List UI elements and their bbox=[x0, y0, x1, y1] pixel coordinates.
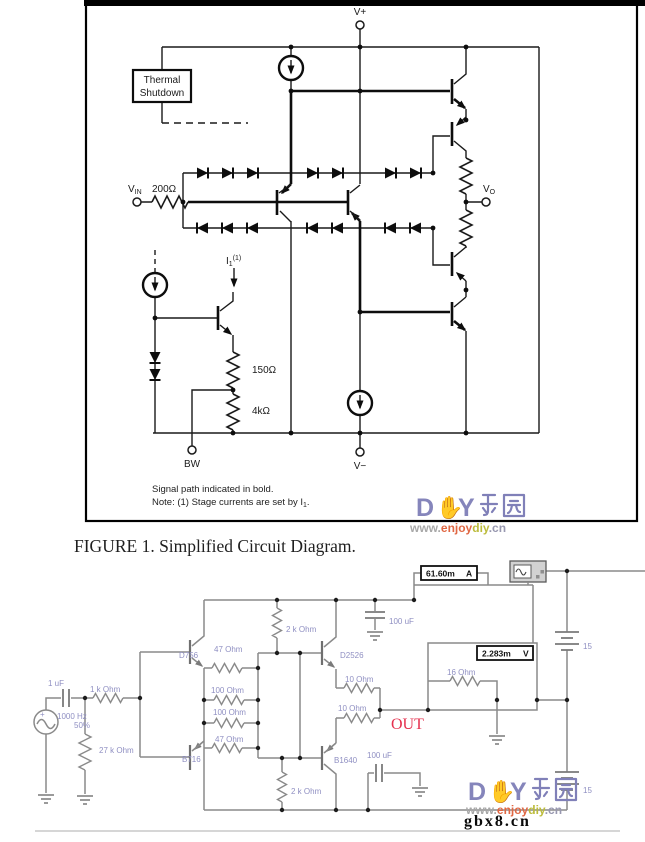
resistor-4kohm bbox=[227, 394, 239, 430]
figure1-caption: FIGURE 1. Simplified Circuit Diagram. bbox=[74, 536, 356, 556]
thermal-shutdown-line1: Thermal bbox=[144, 75, 181, 86]
figure1-bold-signal-path bbox=[188, 91, 450, 312]
battery-top-label: 15 bbox=[583, 642, 592, 651]
v-plus-terminal bbox=[356, 21, 364, 29]
r1k-label: 1 k Ohm bbox=[90, 685, 121, 694]
watermark-d: D bbox=[416, 494, 434, 522]
current-sources bbox=[143, 56, 372, 415]
figure1-resistors bbox=[152, 158, 472, 430]
bw-terminal bbox=[188, 446, 196, 454]
cap-supply-label: 100 uF bbox=[389, 617, 414, 626]
watermark-bottom: D ✋ Y www.enjoydiy.cn gbx8.cn bbox=[464, 778, 576, 830]
v-plus-label: V+ bbox=[354, 7, 367, 18]
schematic-transistor-base-bars bbox=[190, 640, 322, 770]
source-duty-label: 50% bbox=[74, 721, 90, 730]
r10-bottom-label: 10 Ohm bbox=[338, 704, 367, 713]
vin-terminal bbox=[133, 198, 141, 206]
q-d2526-label: D2526 bbox=[340, 651, 364, 660]
schematic-junction-dots bbox=[83, 569, 569, 812]
ground-symbols bbox=[38, 632, 505, 804]
figure1-junction-dots bbox=[153, 45, 469, 436]
schematic-transistor-arrows bbox=[192, 658, 336, 751]
vo-terminal bbox=[482, 198, 490, 206]
q-b716-label: B716 bbox=[182, 755, 201, 764]
oscilloscope-icon bbox=[510, 561, 546, 585]
diode-string-top bbox=[197, 168, 421, 179]
watermark-figure1: D ✋ Y www.enjoydiy.cn bbox=[409, 494, 524, 535]
r4k-label: 4kΩ bbox=[252, 406, 271, 417]
r10-top-label: 10 Ohm bbox=[345, 675, 374, 684]
figure1-simplified-circuit: Thermal Shutdown V+ VIN 200Ω VO BW V− I1… bbox=[84, 0, 645, 521]
source-plus-sign: + bbox=[40, 710, 45, 719]
r200-label: 200Ω bbox=[152, 184, 177, 195]
resistor-47-top bbox=[212, 664, 242, 673]
voltmeter-unit: V bbox=[523, 649, 529, 659]
r100-top-label: 100 Ohm bbox=[211, 686, 244, 695]
r16-load-label: 16 Ohm bbox=[447, 668, 476, 677]
r2k-top-label: 2 k Ohm bbox=[286, 625, 317, 634]
watermark-y: Y bbox=[458, 494, 475, 522]
figure1-arrows bbox=[155, 60, 466, 408]
r47-top-label: 47 Ohm bbox=[214, 645, 243, 654]
r2k-bottom-label: 2 k Ohm bbox=[291, 787, 322, 796]
thermal-shutdown-line2: Shutdown bbox=[140, 88, 184, 99]
ammeter: 61.60m A bbox=[421, 566, 477, 580]
out-label: OUT bbox=[391, 716, 424, 733]
gbx8-overlay-text: gbx8.cn bbox=[464, 813, 531, 830]
resistor-27k bbox=[79, 734, 91, 770]
q-d756-label: D756 bbox=[179, 651, 199, 660]
watermark2-y: Y bbox=[510, 778, 527, 806]
ground-load-icon bbox=[489, 736, 505, 744]
resistor-100-bottom bbox=[214, 719, 244, 728]
battery-bottom-label: 15 bbox=[583, 786, 592, 795]
watermark2-d: D bbox=[468, 778, 486, 806]
resistor-2k-top bbox=[273, 608, 282, 638]
resistor-2k-bottom bbox=[278, 772, 287, 802]
resistor-1k bbox=[93, 694, 123, 703]
ground-supply-cap-icon bbox=[367, 632, 383, 640]
q-b1640-label: B1640 bbox=[334, 756, 358, 765]
circuit-diagrams-scan: Thermal Shutdown V+ VIN 200Ω VO BW V− I1… bbox=[0, 0, 645, 842]
r150-label: 150Ω bbox=[252, 365, 277, 376]
watermark-leyuan-icon bbox=[481, 495, 524, 516]
r100-bottom-label: 100 Ohm bbox=[213, 708, 246, 717]
resistor-100-top bbox=[214, 696, 244, 705]
ground-source-icon bbox=[38, 795, 54, 803]
voltmeter-value: 2.283m bbox=[482, 649, 511, 659]
v-minus-label: V− bbox=[354, 461, 367, 472]
note-signal-path: Signal path indicated in bold. bbox=[152, 484, 273, 495]
schematic-wires bbox=[46, 571, 645, 810]
ammeter-value: 61.60m bbox=[426, 569, 455, 579]
ground-out-cap-icon bbox=[412, 788, 428, 796]
r47-bottom-label: 47 Ohm bbox=[215, 735, 244, 744]
resistor-16-load bbox=[450, 677, 480, 686]
v-minus-terminal bbox=[356, 448, 364, 456]
i1-label: I1(1) bbox=[226, 255, 241, 268]
vo-label: VO bbox=[483, 184, 496, 196]
thermal-shutdown-block: Thermal Shutdown bbox=[133, 70, 191, 102]
ac-source: + bbox=[34, 710, 58, 734]
resistor-47-bottom bbox=[212, 744, 242, 753]
watermark-url: www.enjoydiy.cn bbox=[409, 521, 506, 535]
voltmeter: 2.283m V bbox=[477, 646, 533, 660]
watermark2-leyuan-icon bbox=[533, 779, 576, 800]
diode-string-bottom bbox=[197, 223, 421, 234]
resistor-10-top bbox=[344, 684, 374, 693]
note-stage-currents: Note: (1) Stage currents are set by I1. bbox=[152, 497, 310, 509]
resistor-150ohm bbox=[227, 352, 239, 388]
resistor-10-bottom bbox=[344, 714, 374, 723]
scanned-datasheet-page: Thermal Shutdown V+ VIN 200Ω VO BW V− I1… bbox=[0, 0, 645, 842]
bw-label: BW bbox=[184, 459, 201, 470]
resistor-output-lower bbox=[460, 210, 472, 246]
vin-label: VIN bbox=[128, 184, 142, 196]
ground-27k-icon bbox=[77, 796, 93, 804]
battery-top-icon bbox=[555, 632, 579, 650]
ammeter-unit: A bbox=[466, 569, 472, 579]
r27k-label: 27 k Ohm bbox=[99, 746, 134, 755]
simulation-schematic: + 61.60m A bbox=[34, 561, 645, 812]
cap-in-label: 1 uF bbox=[48, 679, 64, 688]
figure1-transistor-base-bars bbox=[218, 79, 452, 330]
resistor-output-upper bbox=[460, 158, 472, 194]
source-freq-label: 1000 Hz bbox=[57, 712, 87, 721]
cap-out-label: 100 uF bbox=[367, 751, 392, 760]
